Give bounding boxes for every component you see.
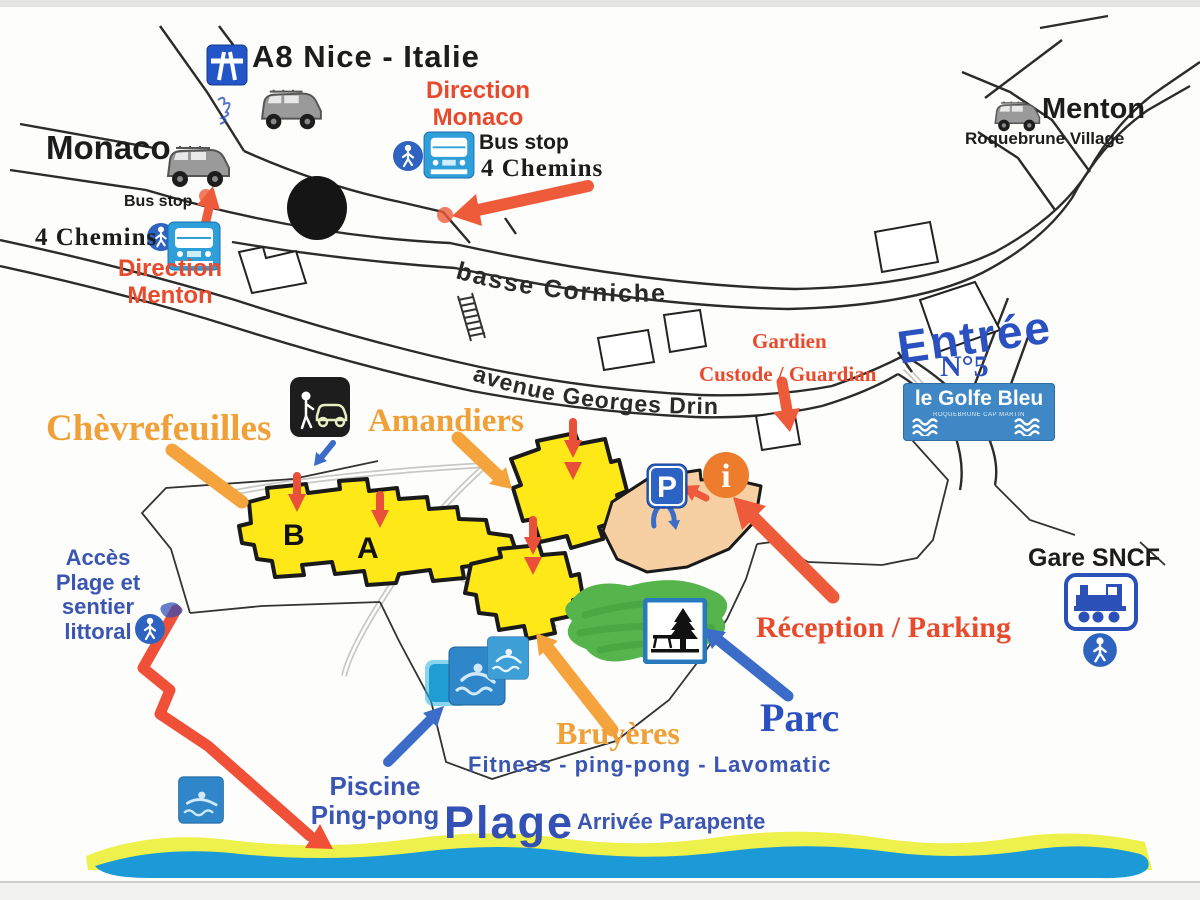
stairs-icon xyxy=(458,293,485,341)
piscine-label: Piscine Ping-pong xyxy=(300,772,450,830)
beach-access-line3: sentier xyxy=(62,594,134,619)
piscine-line2: Ping-pong xyxy=(311,800,440,830)
beach-access-line1: Accès xyxy=(66,545,131,570)
bus-stop-left-label: Bus stop xyxy=(124,193,192,211)
direction-monaco-label: Direction Monaco xyxy=(426,78,530,132)
piscine-arrow xyxy=(388,719,431,762)
train-icon xyxy=(1064,573,1138,631)
car-icon-a8 xyxy=(252,82,330,136)
direction-menton-label: Direction Menton xyxy=(118,256,222,310)
dropoff-icon xyxy=(289,376,351,438)
four-chemins-top-label: 4 Chemins xyxy=(481,155,603,183)
guardian-subtitle: Custode / Guardian xyxy=(699,363,876,387)
amandiers-label: Amandiers xyxy=(368,403,524,440)
fitness-label: Fitness - ping-pong - Lavomatic xyxy=(468,753,831,778)
parc-arrow xyxy=(716,638,788,696)
four-chemins-arrow xyxy=(478,186,588,210)
chevrefeuilles-arrow xyxy=(172,450,242,502)
chevrefeuilles-label: Chèvrefeuilles xyxy=(46,408,271,449)
bus-icon-top xyxy=(423,131,475,179)
swimmer-icon-small xyxy=(486,636,530,680)
scanned-site-map: B A basse Corniche avenue Georges Drin xyxy=(0,0,1200,900)
direction-monaco-line2: Monaco xyxy=(433,104,524,131)
roquebrune-label: Roquebrune Village xyxy=(965,129,1124,148)
info-icon: i xyxy=(702,450,750,500)
reception-arrow xyxy=(752,516,833,597)
four-chemins-left-label: 4 Chemins xyxy=(35,224,157,252)
direction-menton-line1: Direction xyxy=(118,255,222,282)
wave-icon-left xyxy=(911,416,945,436)
parc-sign-icon xyxy=(643,598,707,664)
beach-area xyxy=(86,832,1152,878)
monaco-label: Monaco xyxy=(46,130,171,167)
bus-stop-top-label: Bus stop xyxy=(479,131,569,155)
gare-sncf-label: Gare SNCF xyxy=(1028,544,1160,572)
pedestrian-icon-busstop-top xyxy=(392,140,424,172)
wave-icon-right xyxy=(1013,416,1047,436)
golfe-bleu-sign: le Golfe Bleu ROQUEBRUNE CAP MARTIN xyxy=(903,383,1055,441)
direction-monaco-line1: Direction xyxy=(426,77,530,104)
plage-label: Plage xyxy=(444,798,574,848)
block-a-letter: A xyxy=(357,532,379,565)
beach-access-label: Accès Plage et sentier littoral xyxy=(50,546,146,645)
direction-menton-line2: Menton xyxy=(127,282,212,309)
golfe-bleu-name: le Golfe Bleu xyxy=(903,387,1055,411)
beach-access-line4: littoral xyxy=(64,619,131,644)
info-icon-letter: i xyxy=(721,458,730,495)
pedestrian-icon-gare xyxy=(1082,632,1118,668)
parc-label: Parc xyxy=(760,696,839,741)
bruyeres-label: Bruyères xyxy=(556,716,680,752)
menton-label: Menton xyxy=(1042,93,1145,125)
dropoff-arrow xyxy=(320,443,333,459)
guardian-title: Gardien xyxy=(752,330,827,354)
parking-sign-icon: P xyxy=(646,463,688,509)
motorway-icon xyxy=(206,44,248,86)
swimmer-icon-beach xyxy=(176,776,226,824)
reception-label: Réception / Parking xyxy=(756,611,1011,645)
roundabout xyxy=(287,176,347,240)
beach-access-line2: Plage et xyxy=(56,570,140,595)
bus-stop-dot-top xyxy=(437,207,453,223)
scan-edge-bottom xyxy=(0,883,1200,900)
entree-number: N°5 xyxy=(940,350,989,384)
parapente-label: Arrivée Parapente xyxy=(577,810,765,835)
piscine-line1: Piscine xyxy=(329,771,420,801)
a8-label: A8 Nice - Italie xyxy=(252,40,480,75)
block-b-letter: B xyxy=(283,519,305,552)
parking-sign-letter: P xyxy=(657,471,677,504)
